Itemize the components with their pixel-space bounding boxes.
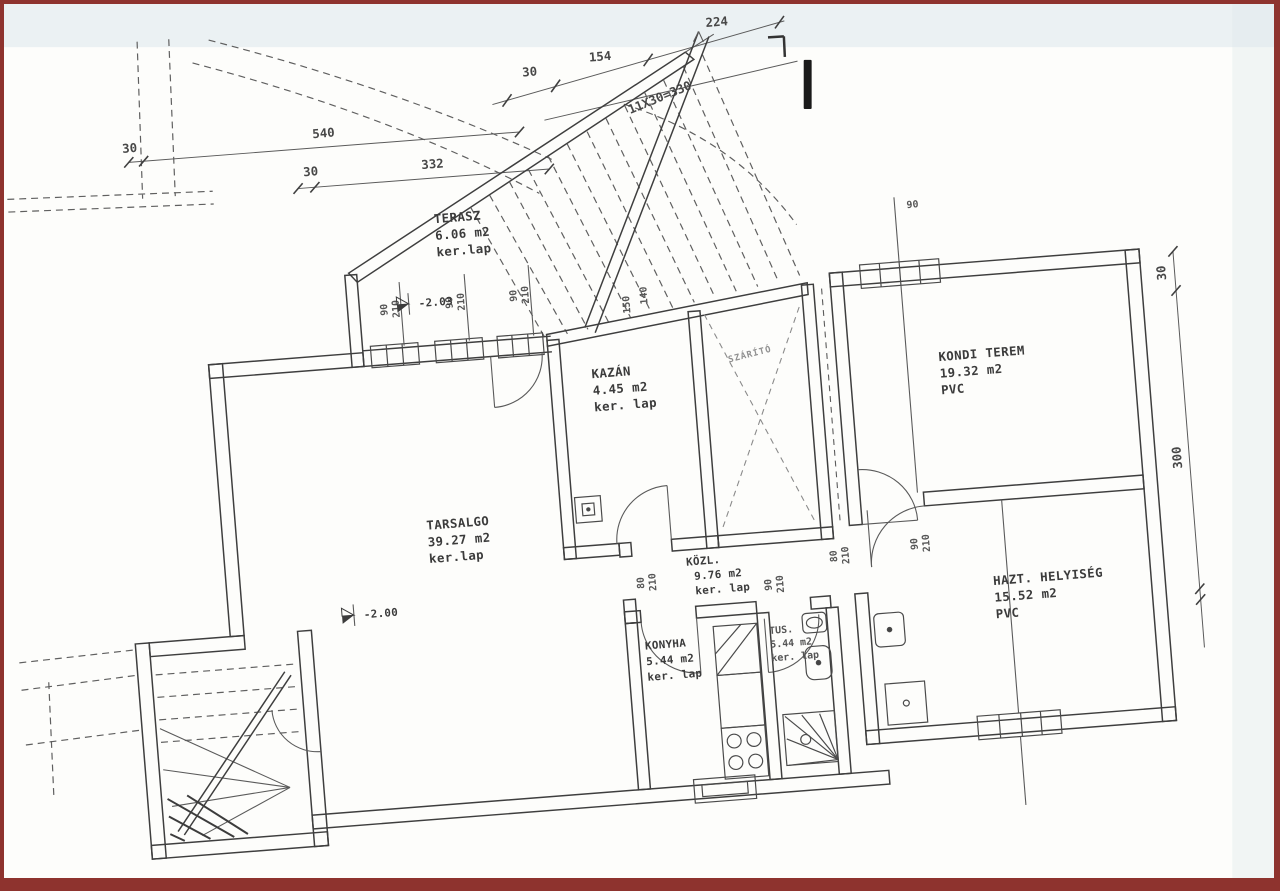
scan-tint-top	[4, 4, 1274, 47]
room-labels: TERASZ 6.06 m2 ker.lap KAZÁN 4.45 m2 ker…	[402, 163, 1109, 700]
elevation-tarsalgo: -2.00	[341, 601, 399, 627]
elevation-value: -2.03	[418, 294, 453, 310]
scanned-floorplan-page: 30 540 30 332 30 154 224 11X30=330	[0, 0, 1280, 891]
dim-154: 154	[588, 49, 611, 65]
elevation-value: -2.00	[363, 606, 398, 622]
right-dimension: 30 300	[1153, 246, 1210, 649]
room-label-tarsalgo-name: TARSALGO	[426, 514, 490, 533]
window-width-mark: 90	[906, 199, 919, 211]
tower-door-arc	[272, 707, 321, 756]
room-label-tarsalgo-area: 39.27 m2	[427, 531, 491, 550]
neighbor-dashed-lines	[4, 4, 837, 798]
dim-540: 540	[312, 126, 335, 142]
stair-stringer-line	[562, 31, 721, 327]
kitchen-counter	[713, 623, 769, 779]
room-label-terasz-area: 6.06 m2	[435, 225, 491, 243]
dim-30-c: 30	[522, 65, 538, 80]
terrace-door-arc	[491, 353, 546, 408]
room-label-szarito: SZÁRÍTÓ	[727, 343, 773, 366]
room-label-tus-area: 5.44 m2	[770, 637, 813, 651]
plan-rotated-group: 30 540 30 332 30 154 224 11X30=330	[4, 4, 1221, 878]
room-label-konyha-area: 5.44 m2	[646, 652, 695, 669]
kondi-door-arc	[858, 465, 918, 524]
door-dim: 80	[828, 550, 840, 563]
room-label-terasz-name: TERASZ	[433, 209, 481, 227]
floorplan-drawing: 30 540 30 332 30 154 224 11X30=330	[4, 4, 1274, 878]
room-label-tus-floor: ker. lap	[771, 650, 820, 665]
dim-right-30: 30	[1154, 265, 1169, 281]
room-label-tarsalgo-floor: ker.lap	[429, 548, 485, 566]
room-label-konyha-floor: ker. lap	[647, 667, 703, 684]
shower-tray	[783, 711, 838, 766]
sink-fixture	[802, 612, 827, 633]
door-dim: 80	[635, 577, 647, 590]
kazan-door-arc	[613, 486, 672, 544]
shaft-szarito	[699, 284, 842, 548]
room-label-kozl-floor: ker. lap	[695, 580, 751, 597]
dim-332: 332	[421, 156, 444, 172]
hazt-appliances	[873, 611, 927, 726]
room-label-kozl-name: KÖZL.	[686, 552, 721, 569]
door-dim: 210	[840, 546, 852, 565]
stair-mark-150: 150	[621, 295, 633, 314]
room-label-kazan-floor: ker. lap	[594, 396, 658, 415]
dim-224: 224	[705, 14, 728, 30]
room-label-konyha-name: KONYHA	[645, 636, 687, 652]
room-label-kondi-floor: PVC	[941, 382, 966, 398]
boiler-box	[574, 496, 602, 523]
room-label-kondi-name: KONDI TEREM	[938, 343, 1025, 364]
door-dim: 210	[520, 285, 532, 304]
room-label-hazt-area: 15.52 m2	[994, 586, 1058, 605]
scan-artifact-bar	[804, 60, 812, 109]
room-label-kazan-name: KAZÁN	[591, 363, 631, 381]
right-block-walls: 90	[824, 179, 1182, 817]
room-label-kondi-area: 19.32 m2	[939, 362, 1003, 381]
stair-stringer-line2	[572, 37, 731, 333]
door-dim: 90	[909, 538, 921, 551]
dim-30-b: 30	[303, 164, 319, 179]
scan-tint-right	[1232, 4, 1274, 878]
dim-30-left: 30	[122, 141, 138, 156]
door-size-labels: 90 210 90 210 90 210 80 210 90 210 80 21…	[377, 236, 936, 623]
door-dim: 90	[763, 578, 775, 591]
room-label-hazt-floor: PVC	[995, 606, 1020, 622]
room-kazan-walls	[546, 311, 719, 560]
stair-mark-140: 140	[638, 286, 650, 305]
door-dim: 210	[456, 292, 468, 311]
stair-tower	[135, 630, 328, 859]
room-label-terasz-floor: ker.lap	[436, 241, 492, 259]
room-label-kazan-area: 4.45 m2	[592, 380, 648, 398]
left-block-walls	[202, 236, 890, 838]
stair-hatch	[167, 791, 248, 842]
door-dim: 90	[379, 303, 391, 316]
hazt-door-arc	[867, 506, 929, 567]
door-dim: 210	[775, 575, 787, 594]
room-label-tus-name: TUS.	[769, 624, 794, 637]
elevation-terasz: -2.03	[396, 290, 454, 316]
dim-right-300: 300	[1169, 446, 1185, 469]
stair-steps	[156, 664, 304, 743]
door-dim: 210	[921, 534, 933, 553]
room-label-hazt-name: HAZT. HELYISÉG	[993, 565, 1104, 588]
door-dim: 90	[508, 289, 520, 302]
door-dim: 210	[647, 573, 659, 592]
room-label-kozl-area: 9.76 m2	[694, 566, 743, 583]
